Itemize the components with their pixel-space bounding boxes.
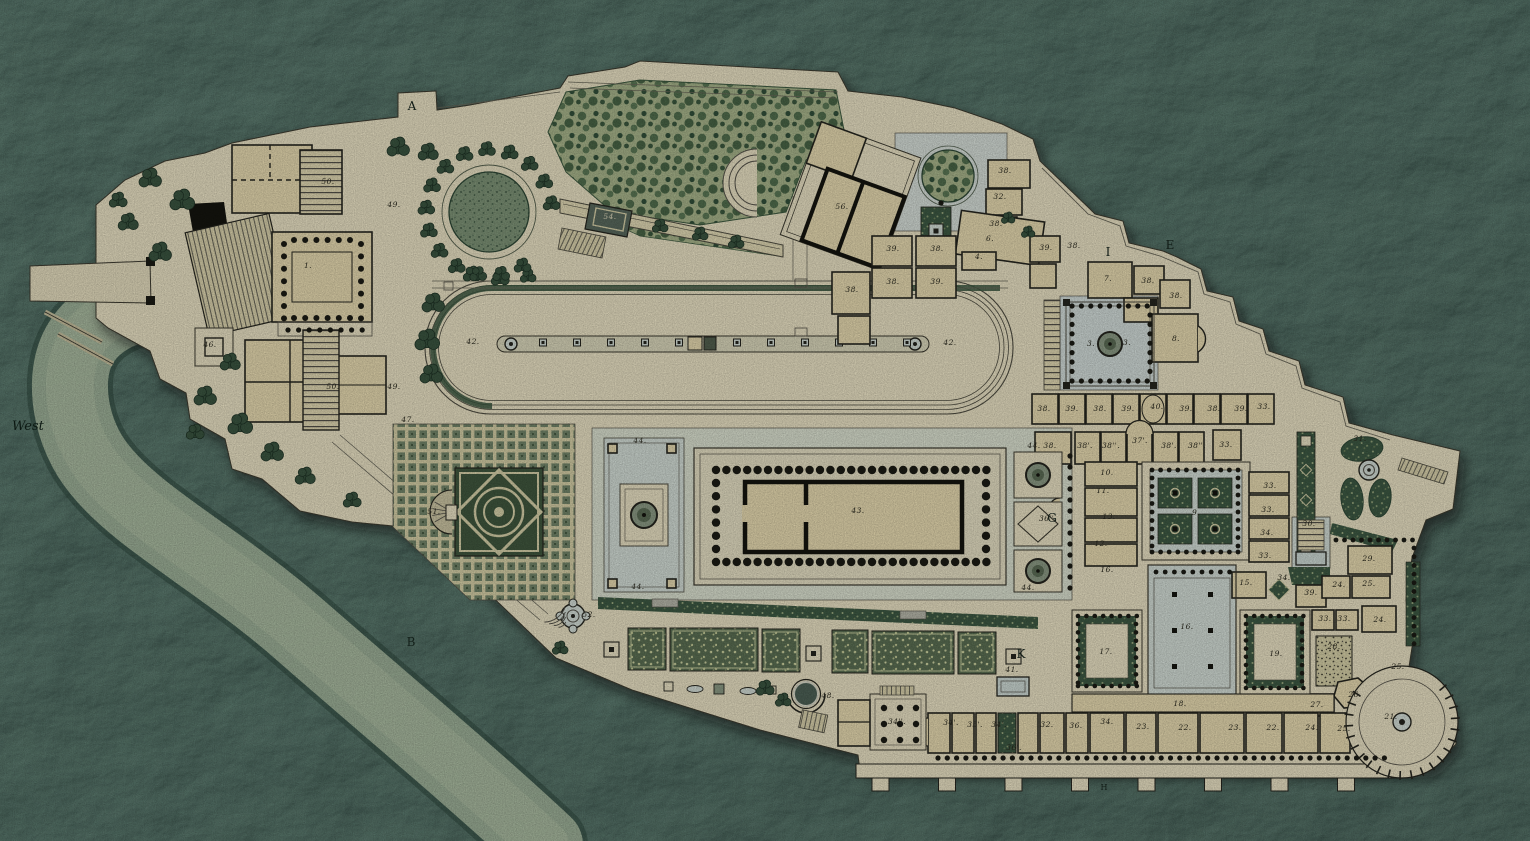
engraved-site-plan-plate: 1.46.50.50.49.49.54.56.38.32.38.6.4.39.3…	[0, 0, 1530, 841]
paper-grain	[0, 0, 1530, 841]
site-plan-svg: 1.46.50.50.49.49.54.56.38.32.38.6.4.39.3…	[0, 0, 1530, 841]
